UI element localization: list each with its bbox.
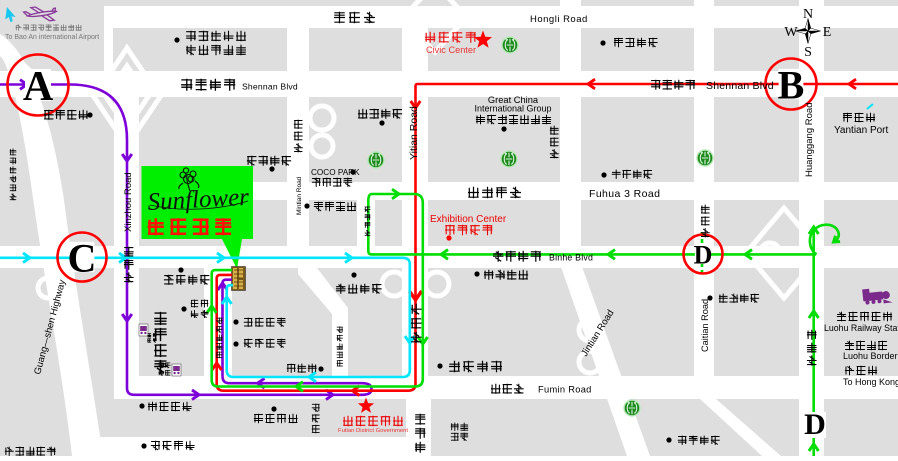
svg-text:N: N: [803, 7, 813, 22]
svg-text:Sunflower: Sunflower: [147, 184, 250, 216]
svg-text:Mintian Road: Mintian Road: [296, 176, 303, 215]
svg-text:Hongli Road: Hongli Road: [530, 14, 588, 25]
svg-text:Shennan Blvd: Shennan Blvd: [242, 82, 298, 92]
svg-text:A: A: [23, 64, 54, 110]
svg-text:D: D: [804, 408, 826, 441]
svg-text:S: S: [804, 45, 812, 60]
svg-text:Fumin Road: Fumin Road: [538, 385, 592, 395]
svg-text:Luohu Border: Luohu Border: [843, 351, 898, 361]
svg-text:D: D: [694, 240, 713, 269]
svg-text:Shennan Blvd: Shennan Blvd: [706, 80, 774, 92]
svg-text:E: E: [823, 25, 832, 40]
svg-text:Caitian Road: Caitian Road: [700, 299, 710, 352]
svg-text:Binhe Blvd: Binhe Blvd: [549, 253, 593, 263]
svg-text:COCO PARK: COCO PARK: [311, 168, 360, 177]
svg-text:B: B: [778, 62, 805, 107]
svg-text:Fuhua 3 Road: Fuhua 3 Road: [589, 188, 660, 200]
svg-text:To Hong Kong: To Hong Kong: [843, 377, 898, 387]
svg-text:Civic Center: Civic Center: [426, 45, 476, 55]
svg-text:Luohu Railway Stati: Luohu Railway Stati: [824, 323, 898, 333]
svg-text:C: C: [68, 235, 97, 280]
svg-text:Exhibition Center: Exhibition Center: [430, 214, 507, 225]
svg-text:To Bao An international Airpor: To Bao An international Airport: [5, 34, 99, 41]
svg-text:Huanggang Road: Huanggang Road: [804, 103, 815, 177]
svg-text:Xinzhou Road: Xinzhou Road: [123, 172, 134, 232]
svg-text:International Group: International Group: [474, 104, 551, 114]
svg-text:Futian District Government: Futian District Government: [338, 428, 408, 434]
svg-text:Yitian Road: Yitian Road: [408, 106, 420, 160]
svg-text:Yantian Port: Yantian Port: [834, 125, 889, 136]
svg-text:W: W: [784, 25, 798, 40]
